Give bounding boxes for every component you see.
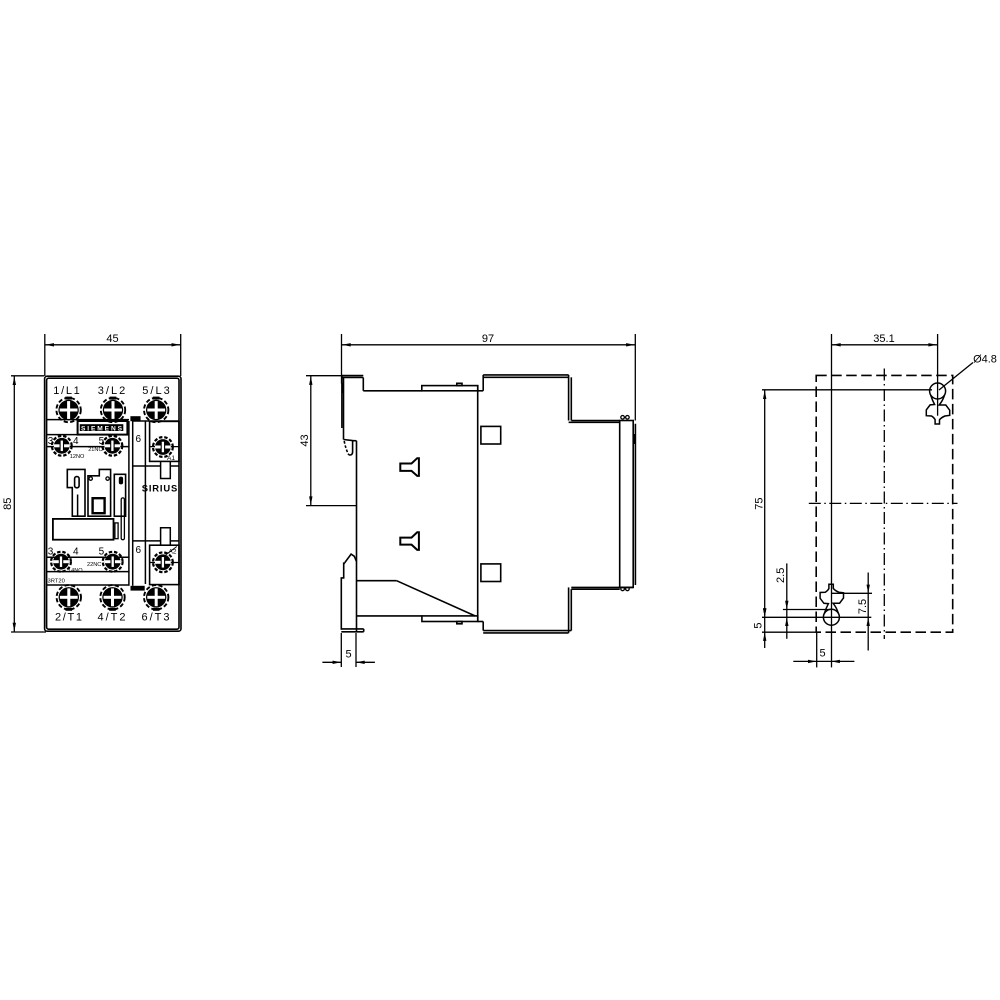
svg-text:4/T2: 4/T2 [98, 612, 126, 624]
svg-text:5/L3: 5/L3 [142, 385, 170, 397]
svg-text:5: 5 [753, 622, 765, 628]
svg-text:3RT20: 3RT20 [48, 579, 65, 585]
svg-text:21NC: 21NC [88, 447, 102, 453]
svg-text:12NO: 12NO [70, 454, 85, 460]
svg-text:45: 45 [106, 333, 118, 345]
svg-text:2/T1: 2/T1 [55, 612, 82, 624]
svg-text:6: 6 [136, 434, 142, 445]
svg-text:3/L2: 3/L2 [98, 385, 126, 397]
svg-text:5: 5 [345, 649, 351, 661]
svg-text:A2: A2 [169, 549, 177, 556]
svg-text:3: 3 [48, 436, 54, 447]
svg-text:4: 4 [73, 436, 79, 447]
svg-text:1/L1: 1/L1 [53, 385, 80, 397]
svg-text:14NO: 14NO [68, 568, 83, 574]
svg-text:85: 85 [2, 498, 14, 510]
svg-text:A1: A1 [167, 455, 175, 462]
svg-text:75: 75 [753, 497, 765, 509]
svg-text:Ø4.8: Ø4.8 [973, 354, 997, 366]
svg-text:6: 6 [136, 545, 142, 556]
svg-text:7.5: 7.5 [857, 599, 869, 614]
svg-text:35.1: 35.1 [873, 333, 894, 345]
svg-text:SIRIUS: SIRIUS [142, 482, 178, 493]
svg-text:2.5: 2.5 [775, 568, 787, 583]
svg-text:5: 5 [99, 546, 105, 557]
svg-text:6/T3: 6/T3 [142, 612, 170, 624]
svg-text:4: 4 [73, 546, 79, 557]
svg-text:43: 43 [299, 434, 311, 446]
svg-text:22NC: 22NC [87, 562, 101, 568]
svg-text:97: 97 [482, 333, 494, 345]
svg-text:5: 5 [99, 436, 105, 447]
svg-text:5: 5 [819, 648, 825, 660]
